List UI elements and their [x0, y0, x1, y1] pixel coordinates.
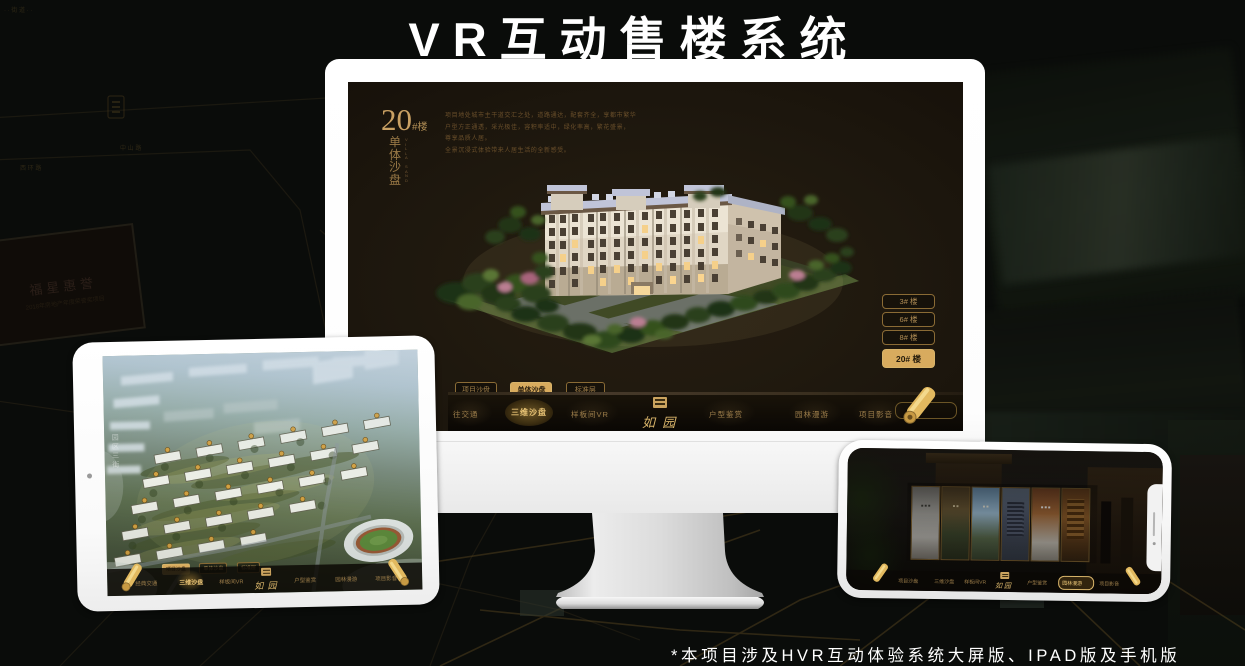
svg-text:西 环 路: 西 环 路	[20, 164, 41, 172]
svg-text:中 山 路: 中 山 路	[120, 144, 141, 152]
